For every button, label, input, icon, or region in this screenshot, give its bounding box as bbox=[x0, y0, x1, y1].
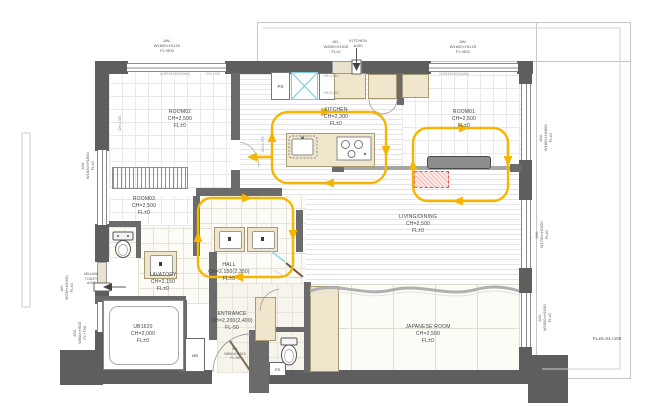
ch-note-2150: CH=2,150 bbox=[317, 91, 345, 95]
vent-x-icon bbox=[292, 73, 317, 99]
label-window-right-1: AW- W1800×H1800 FL±0 bbox=[538, 116, 554, 160]
ch-note-room02-top: CH=1,910 bbox=[199, 72, 227, 76]
room-label-lavatory: LAVATORY CH=2,150 FL±0 bbox=[123, 272, 203, 292]
label-window-right-2: AW- W1700×H1500 FL±0 bbox=[534, 213, 550, 257]
room-label-kitchen: KITCHEN CH=2,300 FL±0 bbox=[296, 107, 376, 127]
room-label-japanese-room: JAPANESE ROOM CH=2,500 FL±0 bbox=[388, 324, 468, 344]
label-window-left-2: AW- W800×H915 FL+750 bbox=[72, 311, 88, 355]
corridor-lines bbox=[22, 133, 30, 307]
label-entrance-door: SD- W800×H1915 FL-55 bbox=[215, 347, 255, 361]
curtain-box-note-room01: CURTAIN BOX(W60) bbox=[424, 72, 484, 76]
label-window-right-3: AW- W1800×H1500 FL±0 bbox=[537, 296, 553, 340]
wc-door-arc bbox=[260, 289, 279, 311]
label-kitchen-duct: KITCHEN ø150 bbox=[345, 38, 371, 48]
stove-icon bbox=[337, 137, 371, 160]
room-label-room01: ROOM01 CH=2,500 FL±0 bbox=[424, 109, 504, 129]
label-window-top-right: AW- W1800×H1125 FL+800 bbox=[433, 39, 493, 55]
label-ub-duct: UB/LAVA TOILET ø100 bbox=[73, 272, 109, 286]
label-window-top-left: AW- W1800×H1120 FL+800 bbox=[137, 38, 197, 54]
ch-note-2380: CH=2,380 bbox=[118, 93, 122, 153]
level-note: FL±0=SL+100 bbox=[572, 336, 642, 341]
flow-arrowheads bbox=[194, 108, 513, 282]
floor-plan: PS MB PS bbox=[0, 0, 650, 406]
ch-note-1975: CH=1,975 bbox=[261, 114, 265, 174]
toilet-icon-lavatory bbox=[113, 232, 133, 258]
overlay-graphics bbox=[0, 0, 650, 406]
room-label-entrance: ENTRANCE CH=2,200(2,400) FL-50 bbox=[192, 311, 272, 331]
curtain-box-note-room02: CURTAIN BOX(W60) bbox=[145, 72, 205, 76]
flow-loop-room01 bbox=[413, 128, 508, 201]
label-window-left-1: AW- W1820×H1800 FL±0 bbox=[80, 144, 96, 188]
glass-door-panel bbox=[271, 251, 285, 262]
room-label-living-dining: LIVING/DINING CH=2,500 FL±0 bbox=[378, 214, 458, 234]
sink-icon bbox=[289, 136, 317, 158]
ch-note-1910: CH=1,910 bbox=[317, 74, 345, 78]
room-label-ub: UB1620 CH=2,000 FL±0 bbox=[103, 324, 183, 344]
balcony-inner-lines bbox=[263, 28, 620, 369]
ceiling-wave-shadow bbox=[310, 291, 519, 296]
room-label-room03: ROOM03 CH=2,500 FL±0 bbox=[104, 196, 184, 216]
toilet-icon-entrance bbox=[281, 338, 297, 365]
room-label-room02: ROOM02 CH=2,500 FL±0 bbox=[140, 109, 220, 129]
